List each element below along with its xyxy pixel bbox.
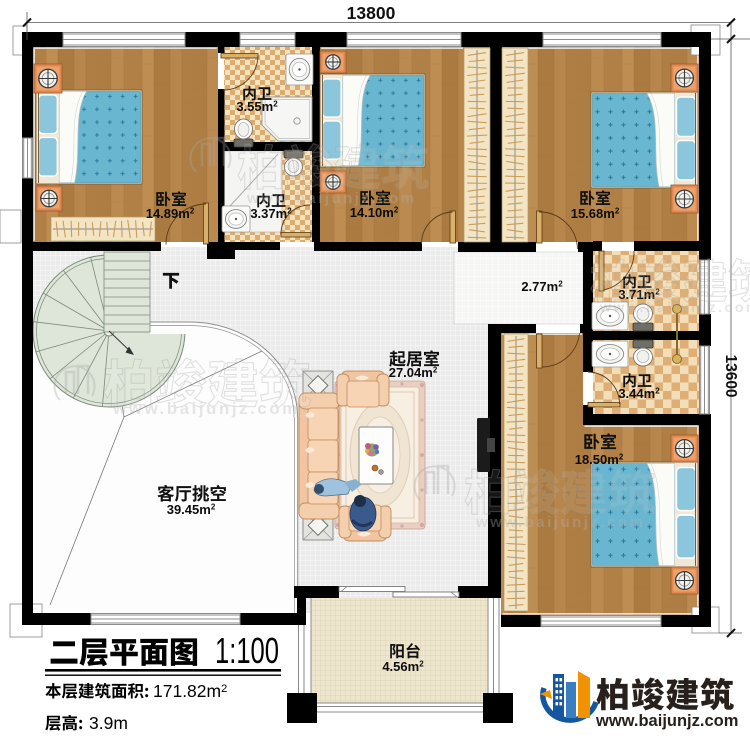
svg-text:3.37m2: 3.37m2 <box>250 206 292 221</box>
svg-text:www.baijunjz.com: www.baijunjz.com <box>475 514 645 531</box>
svg-text:1:100: 1:100 <box>215 630 279 671</box>
svg-text:www.baijunjz.com: www.baijunjz.com <box>595 712 738 730</box>
svg-text:13800: 13800 <box>347 3 396 23</box>
svg-text:2.77m2: 2.77m2 <box>521 279 563 294</box>
svg-text:14.89m2: 14.89m2 <box>146 206 195 221</box>
svg-text:4.56m2: 4.56m2 <box>382 659 424 674</box>
svg-text:171.82m2: 171.82m2 <box>153 681 227 701</box>
svg-text:3.55m2: 3.55m2 <box>236 99 278 114</box>
svg-text:www.baijunjz.com: www.baijunjz.com <box>246 190 416 207</box>
svg-text:3.44m2: 3.44m2 <box>618 386 660 401</box>
svg-text:14.10m2: 14.10m2 <box>350 205 399 220</box>
svg-text:3.9m: 3.9m <box>89 713 128 733</box>
svg-text:www.baijunjz.com: www.baijunjz.com <box>599 299 750 315</box>
svg-text:www.baijunjz.com: www.baijunjz.com <box>112 399 300 418</box>
svg-text:15.68m2: 15.68m2 <box>571 206 620 221</box>
svg-text:13600: 13600 <box>722 354 739 397</box>
svg-text:39.45m2: 39.45m2 <box>167 502 216 517</box>
svg-text:27.04m2: 27.04m2 <box>389 365 438 380</box>
svg-text:18.50m2: 18.50m2 <box>575 452 624 467</box>
